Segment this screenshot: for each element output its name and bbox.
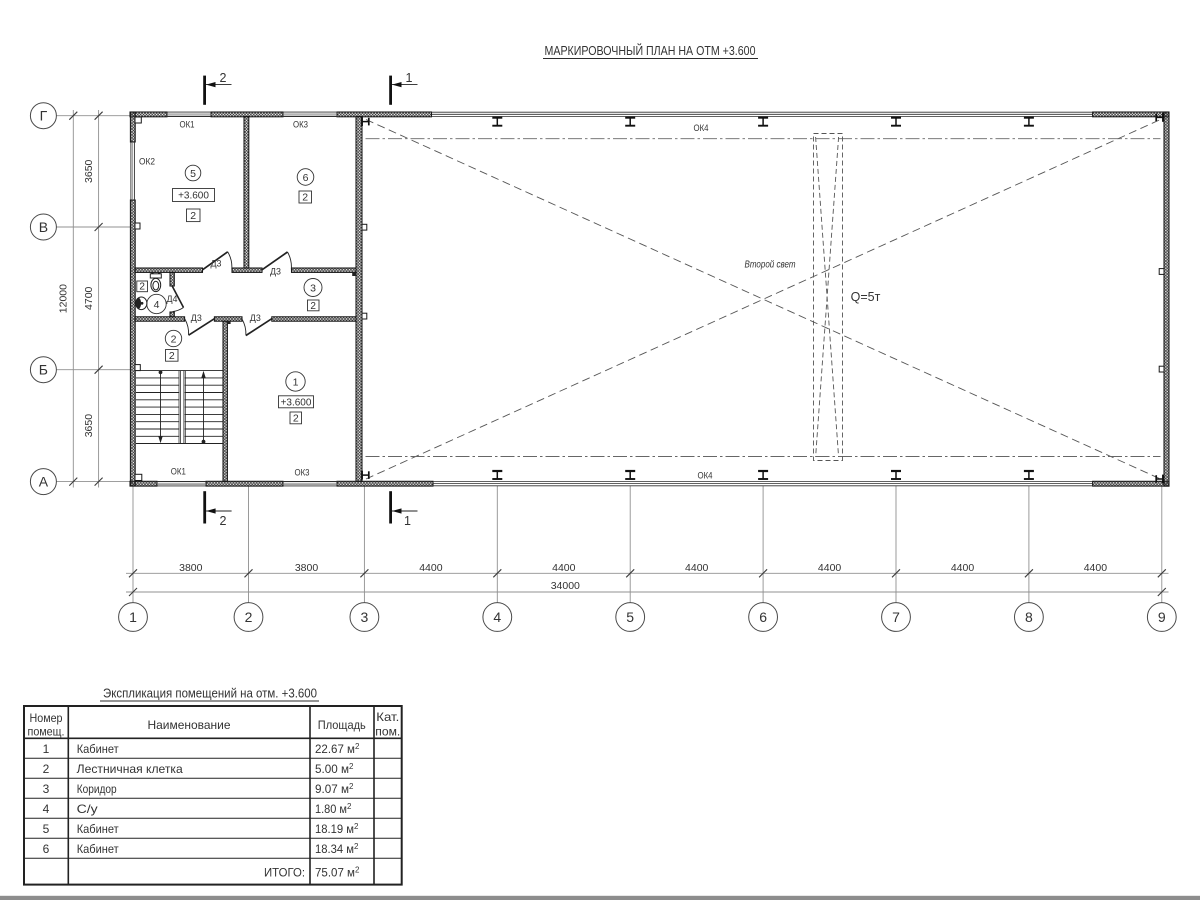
svg-text:34000: 34000 xyxy=(551,580,580,592)
svg-text:Экспликация помещений на отм.: Экспликация помещений на отм. +3.600 xyxy=(103,687,317,701)
svg-text:18.34 м2: 18.34 м2 xyxy=(315,842,359,856)
svg-text:4: 4 xyxy=(154,299,160,311)
svg-text:Д3: Д3 xyxy=(250,313,261,324)
svg-text:4: 4 xyxy=(43,802,50,816)
svg-text:пом.: пом. xyxy=(375,725,400,739)
svg-text:12000: 12000 xyxy=(58,284,70,313)
svg-text:3: 3 xyxy=(43,782,50,796)
svg-text:2: 2 xyxy=(245,609,253,625)
svg-text:Кабинет: Кабинет xyxy=(77,822,119,836)
svg-text:18.19 м2: 18.19 м2 xyxy=(315,822,359,836)
svg-text:ОК3: ОК3 xyxy=(295,468,310,479)
svg-text:ОК2: ОК2 xyxy=(139,157,155,168)
svg-text:ОК1: ОК1 xyxy=(171,466,186,477)
svg-text:Номер: Номер xyxy=(30,711,63,725)
svg-text:4400: 4400 xyxy=(419,562,443,574)
svg-text:4: 4 xyxy=(493,609,501,625)
svg-text:Наименование: Наименование xyxy=(148,718,231,732)
svg-text:ИТОГО:: ИТОГО: xyxy=(264,866,305,880)
svg-text:2: 2 xyxy=(293,413,299,425)
svg-text:3650: 3650 xyxy=(83,159,95,183)
svg-text:2: 2 xyxy=(310,301,316,312)
svg-text:3: 3 xyxy=(361,609,369,625)
svg-text:3650: 3650 xyxy=(83,414,95,438)
svg-text:75.07 м2: 75.07 м2 xyxy=(315,866,360,880)
svg-text:9: 9 xyxy=(1158,609,1166,625)
svg-text:1: 1 xyxy=(129,609,137,625)
svg-text:Б: Б xyxy=(39,362,48,378)
svg-text:1: 1 xyxy=(404,514,411,528)
svg-text:Д4: Д4 xyxy=(167,294,178,305)
svg-text:2: 2 xyxy=(43,762,50,776)
svg-text:1.80 м2: 1.80 м2 xyxy=(315,802,352,816)
svg-text:С/у: С/у xyxy=(77,802,98,816)
svg-text:2: 2 xyxy=(171,334,177,346)
svg-text:4400: 4400 xyxy=(685,562,709,574)
svg-text:3800: 3800 xyxy=(179,562,203,574)
svg-text:+3.600: +3.600 xyxy=(178,191,209,202)
svg-text:Кат.: Кат. xyxy=(376,710,399,724)
svg-text:2: 2 xyxy=(139,282,145,293)
svg-text:2: 2 xyxy=(220,514,227,528)
svg-text:4400: 4400 xyxy=(552,562,576,574)
svg-text:ОК3: ОК3 xyxy=(293,120,308,131)
svg-text:4400: 4400 xyxy=(951,562,975,574)
svg-text:4400: 4400 xyxy=(818,562,842,574)
svg-text:2: 2 xyxy=(169,350,175,362)
svg-text:3: 3 xyxy=(310,283,316,295)
svg-text:7: 7 xyxy=(892,609,900,625)
svg-text:В: В xyxy=(39,219,48,235)
svg-text:А: А xyxy=(39,474,49,490)
svg-text:+3.600: +3.600 xyxy=(281,397,312,408)
svg-text:1: 1 xyxy=(406,71,413,85)
svg-text:Лестничная клетка: Лестничная клетка xyxy=(77,762,183,776)
svg-text:4700: 4700 xyxy=(83,286,95,310)
svg-text:3800: 3800 xyxy=(295,562,319,574)
svg-text:2: 2 xyxy=(190,210,196,222)
svg-text:4400: 4400 xyxy=(1084,562,1108,574)
svg-text:6: 6 xyxy=(43,842,50,856)
svg-text:5: 5 xyxy=(190,168,196,180)
svg-text:5.00 м2: 5.00 м2 xyxy=(315,762,354,776)
svg-text:9.07 м2: 9.07 м2 xyxy=(315,782,354,796)
svg-text:Q=5т: Q=5т xyxy=(851,290,881,304)
svg-text:Кабинет: Кабинет xyxy=(77,842,119,856)
svg-text:8: 8 xyxy=(1025,609,1033,625)
svg-text:помещ.: помещ. xyxy=(28,725,65,739)
svg-text:2: 2 xyxy=(220,71,227,85)
svg-text:Площадь: Площадь xyxy=(318,718,366,732)
svg-text:1: 1 xyxy=(293,377,299,389)
svg-text:6: 6 xyxy=(303,172,309,184)
svg-text:5: 5 xyxy=(626,609,634,625)
svg-text:ОК4: ОК4 xyxy=(694,123,709,134)
svg-text:ОК4: ОК4 xyxy=(698,471,713,482)
svg-text:Г: Г xyxy=(40,108,48,124)
svg-text:5: 5 xyxy=(43,822,50,836)
svg-text:6: 6 xyxy=(759,609,767,625)
svg-text:1: 1 xyxy=(43,742,50,756)
svg-text:2: 2 xyxy=(302,192,308,204)
svg-text:Д3: Д3 xyxy=(270,267,281,278)
svg-text:Второй свет: Второй свет xyxy=(745,260,796,271)
svg-text:Д3: Д3 xyxy=(191,313,202,324)
svg-text:Кабинет: Кабинет xyxy=(77,742,119,756)
svg-text:Д3: Д3 xyxy=(211,259,222,270)
svg-text:Коридор: Коридор xyxy=(77,782,117,796)
svg-text:МАРКИРОВОЧНЫЙ ПЛАН НА ОТМ +3.6: МАРКИРОВОЧНЫЙ ПЛАН НА ОТМ +3.600 xyxy=(545,43,756,58)
svg-text:ОК1: ОК1 xyxy=(180,120,195,131)
svg-text:22.67 м2: 22.67 м2 xyxy=(315,742,360,756)
